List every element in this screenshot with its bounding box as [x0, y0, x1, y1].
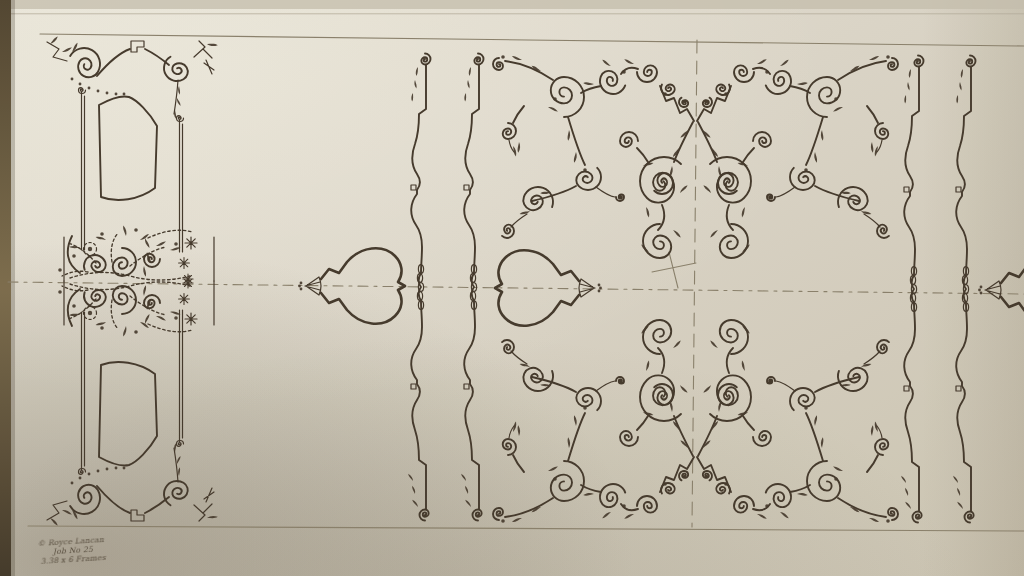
paper-top-edge — [0, 0, 1024, 9]
photo-of-ornament-drawing: Photograph of a hand-inked symmetrical o… — [0, 0, 1024, 576]
table-edge — [0, 0, 15, 576]
paper-top-crease — [0, 13, 1024, 14]
ornament-drawing: Photograph of a hand-inked symmetrical o… — [0, 0, 1024, 576]
